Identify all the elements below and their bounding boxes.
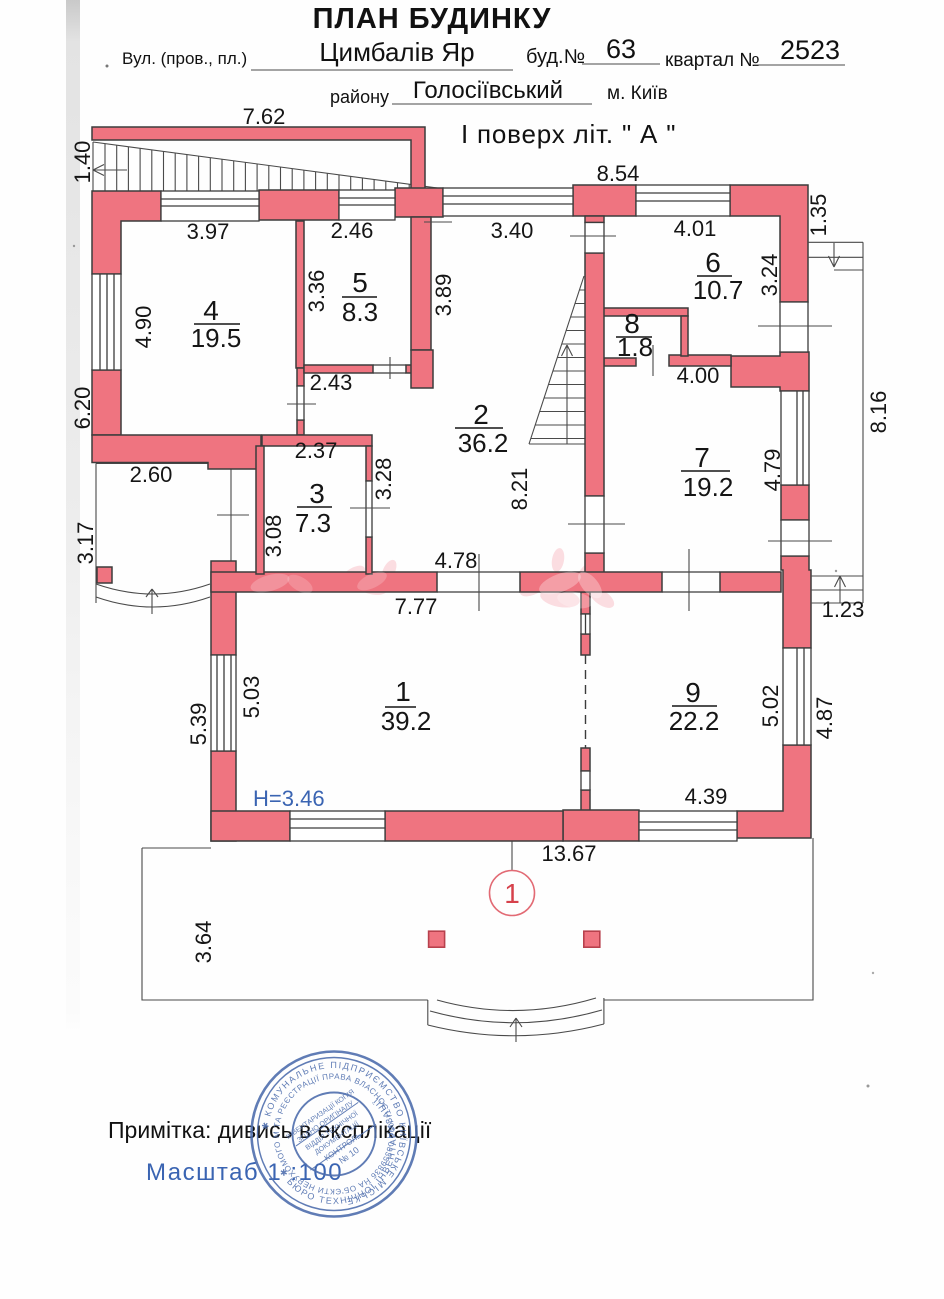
svg-text:5.03: 5.03	[239, 676, 264, 719]
svg-text:36.2: 36.2	[458, 428, 509, 458]
svg-text:8.16: 8.16	[866, 391, 891, 434]
svg-text:3.08: 3.08	[261, 515, 286, 558]
svg-text:3.24: 3.24	[757, 254, 782, 297]
svg-text:8.54: 8.54	[597, 161, 640, 186]
svg-text:7.62: 7.62	[243, 104, 286, 129]
svg-text:Вул. (пров., пл.): Вул. (пров., пл.)	[122, 49, 247, 68]
svg-text:6.20: 6.20	[70, 387, 95, 430]
svg-text:1.8: 1.8	[617, 332, 653, 362]
svg-text:2523: 2523	[780, 35, 840, 65]
svg-text:квартал №: квартал №	[665, 50, 760, 71]
svg-text:13.67: 13.67	[541, 841, 596, 866]
svg-text:8.3: 8.3	[342, 297, 378, 327]
svg-text:7.3: 7.3	[295, 508, 331, 538]
svg-text:4.87: 4.87	[812, 697, 837, 740]
svg-text:3.89: 3.89	[431, 274, 456, 317]
svg-text:3.64: 3.64	[191, 921, 216, 964]
svg-text:63: 63	[606, 34, 636, 64]
svg-text:2.43: 2.43	[310, 370, 353, 395]
svg-text:2: 2	[473, 399, 489, 430]
svg-text:району: району	[330, 87, 389, 107]
svg-text:1.23: 1.23	[822, 597, 865, 622]
svg-text:9: 9	[685, 677, 701, 708]
svg-text:2.46: 2.46	[331, 218, 374, 243]
svg-text:м. Київ: м. Київ	[607, 83, 668, 104]
svg-text:19.5: 19.5	[191, 323, 242, 353]
svg-text:1.35: 1.35	[806, 194, 831, 237]
svg-text:3.40: 3.40	[491, 218, 534, 243]
svg-text:5.39: 5.39	[186, 703, 211, 746]
svg-text:Н=3.46: Н=3.46	[253, 786, 325, 811]
svg-text:ПЛАН БУДИНКУ: ПЛАН БУДИНКУ	[313, 3, 552, 35]
svg-text:4: 4	[203, 295, 219, 326]
svg-text:4.79: 4.79	[760, 449, 785, 492]
svg-text:Цимбалів Яр: Цимбалів Яр	[319, 37, 474, 67]
svg-text:7.77: 7.77	[395, 594, 438, 619]
svg-text:2.60: 2.60	[130, 462, 173, 487]
svg-text:3: 3	[309, 478, 325, 509]
svg-text:2.37: 2.37	[295, 438, 338, 463]
svg-text:4.39: 4.39	[685, 784, 728, 809]
svg-text:3.17: 3.17	[73, 522, 98, 565]
svg-text:1.40: 1.40	[70, 141, 95, 184]
svg-text:7: 7	[694, 442, 710, 473]
svg-text:4.90: 4.90	[131, 306, 156, 349]
svg-text:4.01: 4.01	[674, 216, 717, 241]
svg-text:Голосіївський: Голосіївський	[413, 77, 563, 104]
svg-text:3.97: 3.97	[187, 219, 230, 244]
svg-text:5: 5	[352, 267, 368, 298]
svg-text:1: 1	[504, 878, 520, 909]
svg-text:8.21: 8.21	[507, 468, 532, 511]
svg-text:19.2: 19.2	[683, 472, 734, 502]
svg-text:4.00: 4.00	[677, 363, 720, 388]
svg-text:буд.№: буд.№	[526, 46, 585, 68]
svg-text:1: 1	[395, 676, 411, 707]
svg-text:22.2: 22.2	[669, 706, 720, 736]
svg-text:4.78: 4.78	[435, 548, 478, 573]
svg-text:39.2: 39.2	[381, 706, 432, 736]
svg-text:3.28: 3.28	[371, 458, 396, 501]
svg-text:6: 6	[705, 247, 721, 278]
svg-text:3.36: 3.36	[304, 270, 329, 313]
svg-text:Масштаб 1 :100: Масштаб 1 :100	[146, 1159, 343, 1186]
svg-text:5.02: 5.02	[758, 685, 783, 728]
svg-text:ТА РЕЄСТРАЦІЇ ПРАВА ВЛАСНОСТІ: ТА РЕЄСТРАЦІЇ ПРАВА ВЛАСНОСТІ КОД 033598…	[0, 0, 396, 1196]
svg-text:10.7: 10.7	[693, 275, 744, 305]
svg-text:І поверх літ. " А ": І поверх літ. " А "	[461, 119, 676, 149]
